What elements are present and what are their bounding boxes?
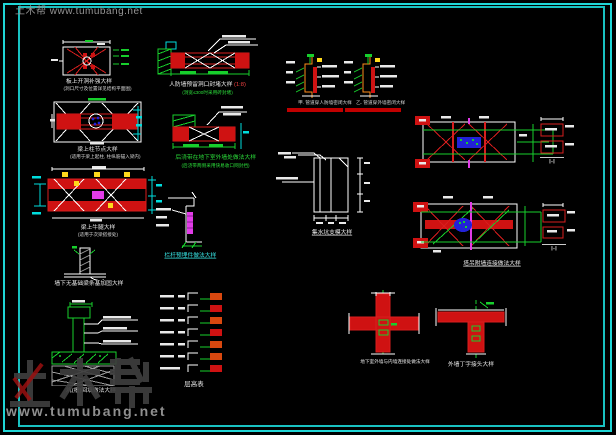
detail-beam-corbel: 梁上牛腿大样 (适用于次梁搭接处): [32, 166, 164, 242]
detail-title: 甲. 管道穿人防墙密闭大样: [298, 100, 332, 105]
strip-footing-drawing: [42, 246, 130, 280]
watermark-top: 土木帮 www.tumubang.net: [15, 2, 143, 17]
detail-note: (适用于次梁搭接处): [60, 232, 137, 237]
detail-title: 后浇带在地下室外墙处做法大样: [175, 154, 238, 161]
detail-slab-opening: 板上开洞补强大样 (洞口尺寸及位置详见结构平面图): [45, 40, 133, 96]
section-mark: Ⅰ-Ⅰ: [542, 244, 566, 252]
beam-column-drawing: [50, 98, 145, 146]
cad-sheet: 土木帮 www.tumubang.net 板上开洞补强大样 (洞口尺寸及位置详见…: [0, 0, 616, 435]
detail-floor-table: 层高表: [158, 290, 230, 392]
detail-railing-embed: 栏杆预埋件做法大样: [156, 190, 216, 266]
detail-title: 板上开洞补强大样: [57, 78, 120, 85]
sump-pit-drawing: [276, 152, 388, 226]
detail-title: 层高表: [168, 380, 220, 387]
watermark-url: www.tumubang.net: [6, 403, 167, 419]
post-pour-drawing: [163, 103, 251, 153]
detail-title: 集水坑支模大样: [292, 229, 373, 236]
detail-wall-opening-seal: 人防墙预留洞口封堵大样 (1:8) (洞宽≤300时采用砖封堵): [150, 30, 265, 96]
detail-tower-tie-2: Ⅰ-Ⅰ 塔吊附墙连接做法大样: [413, 194, 581, 274]
detail-pipe-seal-a: 甲. 管道穿人防墙密闭大样: [286, 52, 344, 114]
detail-pipe-seal-b: 乙. 管道穿外墙密闭大样: [344, 52, 402, 114]
detail-note: (洞宽≤300时采用砖封堵): [174, 90, 241, 95]
detail-title: 梁上牛腿大样: [50, 224, 145, 231]
detail-title: 乙. 管道穿外墙密闭大样: [356, 100, 390, 105]
label-underline: [345, 108, 401, 112]
wall-opening-seal-drawing: [150, 30, 265, 82]
detail-note: (洞口尺寸及位置详见结构平面图): [63, 86, 114, 91]
detail-title: 外墙丁字接头大样: [441, 361, 500, 368]
detail-post-pour: 后浇带在地下室外墙处做法大样 (后浇带两侧采用快易收口网封挡): [163, 103, 251, 171]
detail-title: 塔吊附墙连接做法大样: [450, 260, 535, 267]
floor-table-drawing: [158, 290, 230, 378]
detail-title: 地下室外墙与内墙连接处做法大样: [360, 359, 408, 364]
beam-corbel-drawing: [32, 166, 164, 224]
pipe-seal-b-drawing: [344, 52, 402, 102]
section-mark: Ⅰ-Ⅰ: [540, 157, 564, 165]
detail-strip-footing: 墙下无基础梁条基加固大样: [42, 246, 130, 294]
railing-embed-drawing: [156, 190, 216, 252]
detail-wall-tee: 外墙丁字接头大样: [430, 300, 512, 374]
wall-cross-drawing: [343, 290, 425, 358]
detail-title: 梁上柱节点大样: [63, 146, 131, 153]
detail-sump-pit: 集水坑支模大样: [276, 152, 388, 242]
detail-title: 墙下无基础梁条基加固大样: [54, 280, 117, 287]
detail-title: 人防墙预留洞口封堵大样 (1:8): [166, 81, 249, 88]
detail-wall-cross: 地下室外墙与内墙连接处做法大样: [343, 290, 425, 372]
detail-note: (后浇带两侧采用快易收口网封挡): [181, 163, 232, 168]
detail-note: (适用于梁上起柱, 柱纵筋锚入梁内): [70, 154, 125, 159]
detail-beam-column: 梁上柱节点大样 (适用于梁上起柱, 柱纵筋锚入梁内): [50, 98, 145, 162]
wall-tee-drawing: [430, 300, 512, 360]
slab-opening-drawing: [45, 40, 133, 78]
detail-title: 栏杆预埋件做法大样: [164, 252, 207, 259]
tower-tie-1-drawing: [413, 110, 581, 176]
detail-tower-tie-1: Ⅰ-Ⅰ: [413, 110, 581, 176]
label-underline: [287, 108, 343, 112]
pipe-seal-a-drawing: [286, 52, 344, 102]
